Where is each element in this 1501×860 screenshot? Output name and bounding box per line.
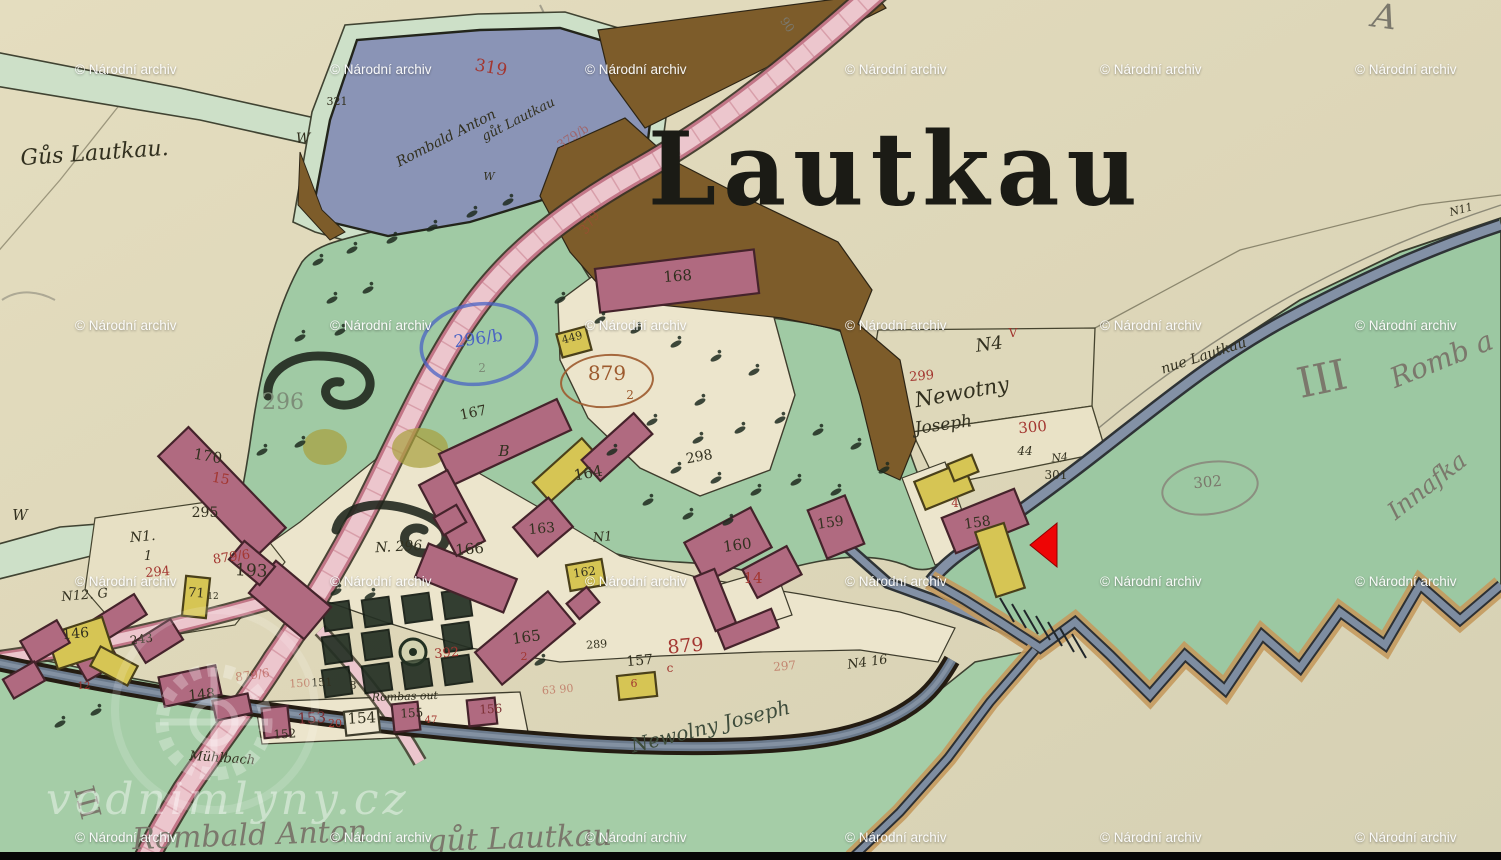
garden-plot	[402, 593, 432, 623]
map-label: 300	[1018, 417, 1048, 437]
archive-watermark: © Národní archiv	[75, 574, 177, 589]
map-label: 157	[626, 652, 654, 670]
map-label: 156	[479, 701, 503, 716]
map-label: 302	[1193, 472, 1223, 492]
archive-watermark: © Národní archiv	[845, 574, 947, 589]
map-label: III	[1293, 350, 1352, 408]
garden-circle-center	[409, 648, 417, 656]
garden-plot	[322, 634, 352, 664]
map-label: N4	[1050, 450, 1069, 464]
archive-watermark: © Národní archiv	[1355, 318, 1457, 333]
archive-watermark: © Národní archiv	[1100, 830, 1202, 845]
map-label: V	[1008, 326, 1018, 340]
map-label: N1	[591, 529, 613, 546]
archive-watermark: © Národní archiv	[1100, 318, 1202, 333]
archive-watermark: © Národní archiv	[330, 830, 432, 845]
map-label: 193	[235, 560, 268, 582]
map-label: 6	[631, 677, 638, 690]
map-label: 154	[347, 708, 377, 727]
map-label: 47	[425, 715, 438, 726]
map-label: 2	[521, 650, 528, 663]
garden-plot	[362, 630, 392, 660]
map-label: c	[667, 661, 674, 675]
archive-watermark: © Národní archiv	[845, 62, 947, 77]
map-label: 321	[327, 95, 348, 108]
map-label: 12	[78, 681, 91, 692]
map-label: 296	[262, 390, 304, 415]
archive-watermark: © Národní archiv	[1100, 574, 1202, 589]
map-label: N4	[973, 332, 1004, 357]
map-label: 155	[400, 705, 424, 720]
map-label: Rombas out	[371, 689, 439, 704]
archive-watermark: © Národní archiv	[585, 62, 687, 77]
map-label: 2	[626, 388, 634, 402]
map-label: 1	[144, 549, 152, 564]
map-label: 152	[273, 726, 297, 741]
map-label: 4	[951, 496, 959, 510]
map-label: 8	[350, 679, 357, 692]
archive-watermark: © Národní archiv	[75, 318, 177, 333]
map-label: 168	[663, 266, 693, 286]
map-label: 879	[666, 633, 704, 658]
garden-plot	[362, 663, 392, 693]
archive-watermark: © Národní archiv	[585, 318, 687, 333]
bush-patch	[303, 429, 347, 465]
map-label: 297	[773, 658, 797, 674]
map-label: 44	[1016, 444, 1032, 458]
map-label: 12	[207, 592, 218, 602]
map-label: 392	[434, 645, 460, 662]
map-label: 71	[187, 585, 205, 601]
map-label: 15	[211, 470, 231, 489]
map-label: 63 90	[541, 682, 574, 698]
archive-watermark: © Národní archiv	[75, 830, 177, 845]
garden-plot	[362, 597, 392, 627]
map-label: B	[497, 442, 509, 460]
archive-watermark: © Národní archiv	[1355, 574, 1457, 589]
map-label: 295	[192, 505, 219, 521]
map-label: 299	[909, 368, 935, 385]
archive-watermark: © Národní archiv	[1355, 62, 1457, 77]
map-label: 20	[328, 717, 342, 730]
map-title: Lautkau	[648, 110, 1144, 229]
branding-watermark: vodnimlyny.cz	[46, 774, 410, 825]
archive-watermark: © Národní archiv	[585, 574, 687, 589]
map-label: 289	[586, 637, 608, 652]
map-label: N. 296	[374, 538, 423, 556]
archive-watermark: © Národní archiv	[1100, 62, 1202, 77]
map-label: 166	[455, 539, 485, 559]
map-label: 146	[62, 625, 90, 643]
archive-watermark: © Národní archiv	[585, 830, 687, 845]
archive-watermark: © Národní archiv	[845, 318, 947, 333]
map-label: W	[483, 170, 496, 183]
bush-patch	[392, 428, 448, 468]
archive-watermark: © Národní archiv	[845, 830, 947, 845]
archive-watermark: © Národní archiv	[75, 62, 177, 77]
archive-watermark: © Národní archiv	[330, 318, 432, 333]
map-label: W	[296, 131, 312, 147]
map-viewer: Gůs Lautkau.321WWW319Rombald Antongůt La…	[0, 0, 1501, 860]
archive-watermark: © Národní archiv	[330, 574, 432, 589]
map-label: W	[12, 506, 29, 524]
archive-watermark: © Národní archiv	[330, 62, 432, 77]
map-label: 301	[1045, 468, 1068, 482]
map-label: 2	[478, 361, 486, 375]
map-label: N1.	[128, 528, 156, 546]
letterbox-bar	[0, 852, 1501, 860]
map-label: 879	[588, 361, 626, 385]
map-label: 14	[743, 569, 762, 587]
archive-watermark: © Národní archiv	[1355, 830, 1457, 845]
map-label: 163	[528, 520, 556, 538]
